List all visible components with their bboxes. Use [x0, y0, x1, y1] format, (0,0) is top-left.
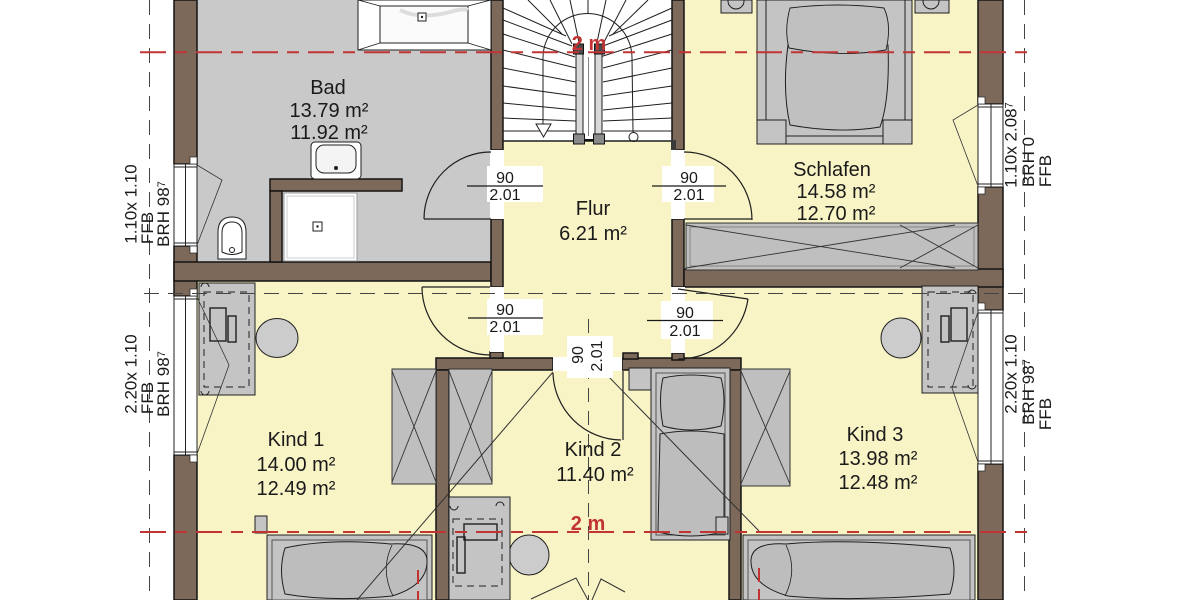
svg-text:11.92 m²: 11.92 m² [290, 122, 368, 144]
svg-text:Kind 2: Kind 2 [565, 439, 622, 461]
svg-text:2.01: 2.01 [669, 323, 700, 340]
svg-text:90: 90 [496, 302, 514, 319]
svg-text:90: 90 [496, 170, 514, 187]
svg-text:12.49 m²: 12.49 m² [257, 478, 336, 500]
svg-text:13.98 m²: 13.98 m² [839, 448, 918, 470]
svg-text:Flur: Flur [576, 198, 611, 220]
svg-text:2 m: 2 m [572, 33, 606, 55]
svg-text:90: 90 [676, 305, 694, 322]
svg-text:1.10x 2.087: 1.10x 2.087 [1002, 102, 1021, 188]
svg-text:2.20x 1.10: 2.20x 1.10 [1002, 334, 1021, 413]
svg-text:Schlafen: Schlafen [793, 159, 871, 181]
svg-text:FFB: FFB [1036, 155, 1055, 187]
svg-text:BRH 987: BRH 987 [154, 351, 173, 417]
svg-text:Bad: Bad [310, 77, 346, 99]
svg-text:13.79 m²: 13.79 m² [290, 100, 369, 122]
svg-text:Kind 1: Kind 1 [268, 429, 325, 451]
svg-text:2 m: 2 m [571, 513, 605, 535]
svg-text:90: 90 [570, 346, 587, 364]
svg-text:2.01: 2.01 [589, 340, 606, 371]
svg-text:12.70 m²: 12.70 m² [797, 203, 876, 225]
svg-text:2.01: 2.01 [673, 187, 704, 204]
svg-text:2.01: 2.01 [489, 187, 520, 204]
svg-text:FFB: FFB [1036, 398, 1055, 430]
svg-text:14.00 m²: 14.00 m² [257, 454, 336, 476]
svg-text:6.21 m²: 6.21 m² [559, 223, 627, 245]
svg-text:BRH 987: BRH 987 [154, 181, 173, 247]
svg-text:12.48 m²: 12.48 m² [839, 472, 918, 494]
svg-text:2.01: 2.01 [489, 319, 520, 336]
svg-text:14.58 m²: 14.58 m² [797, 181, 876, 203]
svg-text:90: 90 [680, 170, 698, 187]
svg-text:Kind 3: Kind 3 [847, 424, 904, 446]
svg-text:11.40 m²: 11.40 m² [556, 464, 634, 486]
